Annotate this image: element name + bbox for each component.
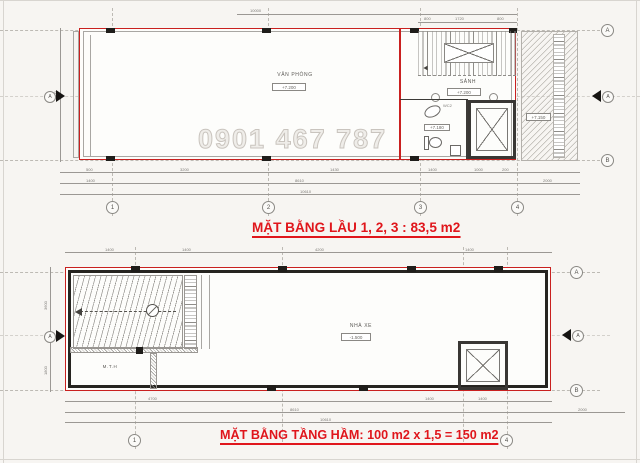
dimension-text: 1400 bbox=[465, 247, 474, 252]
dimension-text: 500 bbox=[86, 167, 93, 172]
elevator-car bbox=[476, 108, 508, 151]
door-tag-circle bbox=[431, 93, 440, 102]
dimension-line bbox=[65, 422, 552, 423]
garage-level-tag: -1.500 bbox=[341, 333, 371, 341]
wc-level-tag: +7.180 bbox=[424, 124, 450, 131]
section-marker-label: A bbox=[572, 330, 584, 342]
elevator-shaft bbox=[468, 100, 516, 159]
grid-line-4 bbox=[517, 8, 518, 216]
section-marker-label: A bbox=[44, 91, 56, 103]
dimension-text: 200 bbox=[502, 167, 509, 172]
grid-line-B bbox=[0, 160, 600, 161]
ramp-direction-line bbox=[80, 311, 176, 312]
dimension-text: 1800 bbox=[43, 366, 48, 375]
grid-bubble-A: A bbox=[570, 266, 583, 279]
section-marker-icon bbox=[56, 330, 65, 342]
dimension-text: 10610 bbox=[300, 189, 311, 194]
drawing-sheet: VĂN PHÒNG +7.200 SẢNH +7.200 WC2 +7.180 … bbox=[0, 0, 640, 463]
upper-plan-title: MẶT BẰNG LẦU 1, 2, 3 : 83,5 m2 bbox=[252, 219, 460, 238]
wc-label: WC2 bbox=[443, 103, 452, 108]
dimension-text: 2000 bbox=[543, 178, 552, 183]
column bbox=[131, 266, 140, 272]
dimension-text: 800 bbox=[497, 16, 504, 21]
mth-room-right-wall bbox=[150, 353, 157, 389]
section-marker-icon bbox=[56, 90, 65, 102]
column bbox=[278, 266, 287, 272]
mth-room-top-wall bbox=[70, 347, 198, 353]
dimension-text: 8610 bbox=[290, 407, 299, 412]
elevator-car bbox=[466, 349, 500, 382]
basement-plan-title: MẶT BẰNG TẦNG HẦM: 100 m2 x 1,5 = 150 m2 bbox=[220, 427, 499, 445]
dimension-text: 800 bbox=[424, 16, 431, 21]
column bbox=[267, 385, 276, 391]
dimension-text: 1400 bbox=[428, 167, 437, 172]
dimension-text: 1400 bbox=[182, 247, 191, 252]
balcony-strip bbox=[73, 31, 79, 158]
dimension-line bbox=[65, 412, 625, 413]
dimension-text: 4700 bbox=[148, 396, 157, 401]
stair-direction-arrow bbox=[423, 66, 427, 71]
dimension-text: 8610 bbox=[295, 178, 304, 183]
column bbox=[106, 156, 115, 161]
ramp-hatch bbox=[73, 275, 183, 349]
dimension-line bbox=[65, 401, 552, 402]
dimension-text: 1000 bbox=[474, 167, 483, 172]
column bbox=[407, 266, 416, 272]
column bbox=[359, 385, 368, 391]
section-marker-icon bbox=[562, 329, 571, 341]
stair-landing bbox=[444, 43, 494, 63]
dimension-text: 10000 bbox=[250, 8, 261, 13]
wc-top-wall bbox=[400, 99, 468, 100]
office-room-label: VĂN PHÒNG bbox=[240, 72, 350, 78]
grid-bubble-1: 1 bbox=[128, 434, 141, 447]
dimension-line bbox=[60, 183, 580, 184]
ramp-symbol-icon bbox=[146, 304, 159, 317]
grid-bubble-1: 1 bbox=[106, 201, 119, 214]
section-marker-label: A bbox=[44, 331, 56, 343]
core-partition-wall bbox=[399, 29, 401, 159]
dimension-line bbox=[418, 22, 517, 23]
grid-bubble-4: 4 bbox=[511, 201, 524, 214]
left-interior-wall bbox=[90, 35, 91, 157]
column bbox=[262, 156, 271, 161]
dimension-text: 1400 bbox=[86, 178, 95, 183]
elevator-shaft bbox=[458, 341, 508, 390]
dimension-line bbox=[237, 14, 517, 15]
dimension-text: 2000 bbox=[578, 407, 587, 412]
dimension-line bbox=[60, 194, 580, 195]
upper-floor-plan: VĂN PHÒNG +7.200 SẢNH +7.200 WC2 +7.180 … bbox=[0, 0, 640, 218]
section-marker-icon bbox=[592, 90, 601, 102]
section-marker-label: A bbox=[602, 91, 614, 103]
neighbor-wall-detail bbox=[553, 34, 565, 158]
garage-label: NHÀ XE bbox=[336, 323, 386, 329]
mth-room-label: M.T.H bbox=[80, 364, 140, 369]
lobby-level-tag: +7.200 bbox=[447, 88, 481, 96]
dimension-line bbox=[50, 267, 51, 392]
dimension-text: 4200 bbox=[315, 247, 324, 252]
lobby-label: SẢNH bbox=[438, 79, 498, 85]
dimension-text: 1400 bbox=[105, 247, 114, 252]
grid-bubble-A: A bbox=[601, 24, 614, 37]
dimension-text: 1430 bbox=[330, 167, 339, 172]
grid-bubble-B: B bbox=[601, 154, 614, 167]
toilet-bowl-icon bbox=[429, 137, 442, 148]
neighbor-hatched-area bbox=[521, 31, 578, 161]
dimension-line bbox=[65, 252, 552, 253]
column bbox=[106, 28, 115, 33]
dimension-text: 1400 bbox=[425, 396, 434, 401]
drain-grate bbox=[184, 275, 197, 349]
grid-bubble-B: B bbox=[570, 384, 583, 397]
dimension-text: 3200 bbox=[180, 167, 189, 172]
dimension-text: 1400 bbox=[478, 396, 487, 401]
grid-bubble-2: 2 bbox=[262, 201, 275, 214]
parking-line bbox=[201, 275, 202, 349]
grid-bubble-4: 4 bbox=[500, 434, 513, 447]
staircase bbox=[418, 31, 516, 76]
column bbox=[410, 156, 419, 161]
dimension-text: 10610 bbox=[320, 417, 331, 422]
neighbor-level-tag: +7.150 bbox=[526, 113, 551, 121]
dimension-line bbox=[60, 172, 580, 173]
column bbox=[136, 347, 143, 354]
dimension-text: 3600 bbox=[43, 301, 48, 310]
office-level-tag: +7.200 bbox=[272, 83, 306, 91]
column bbox=[494, 266, 503, 272]
ramp-arrow-icon bbox=[75, 308, 82, 316]
floor-drain-icon bbox=[450, 145, 461, 156]
watermark-phone: 0901 467 787 bbox=[198, 124, 387, 155]
grid-bubble-3: 3 bbox=[414, 201, 427, 214]
dimension-text: 1720 bbox=[455, 16, 464, 21]
column bbox=[262, 28, 271, 33]
parking-line bbox=[209, 275, 210, 349]
